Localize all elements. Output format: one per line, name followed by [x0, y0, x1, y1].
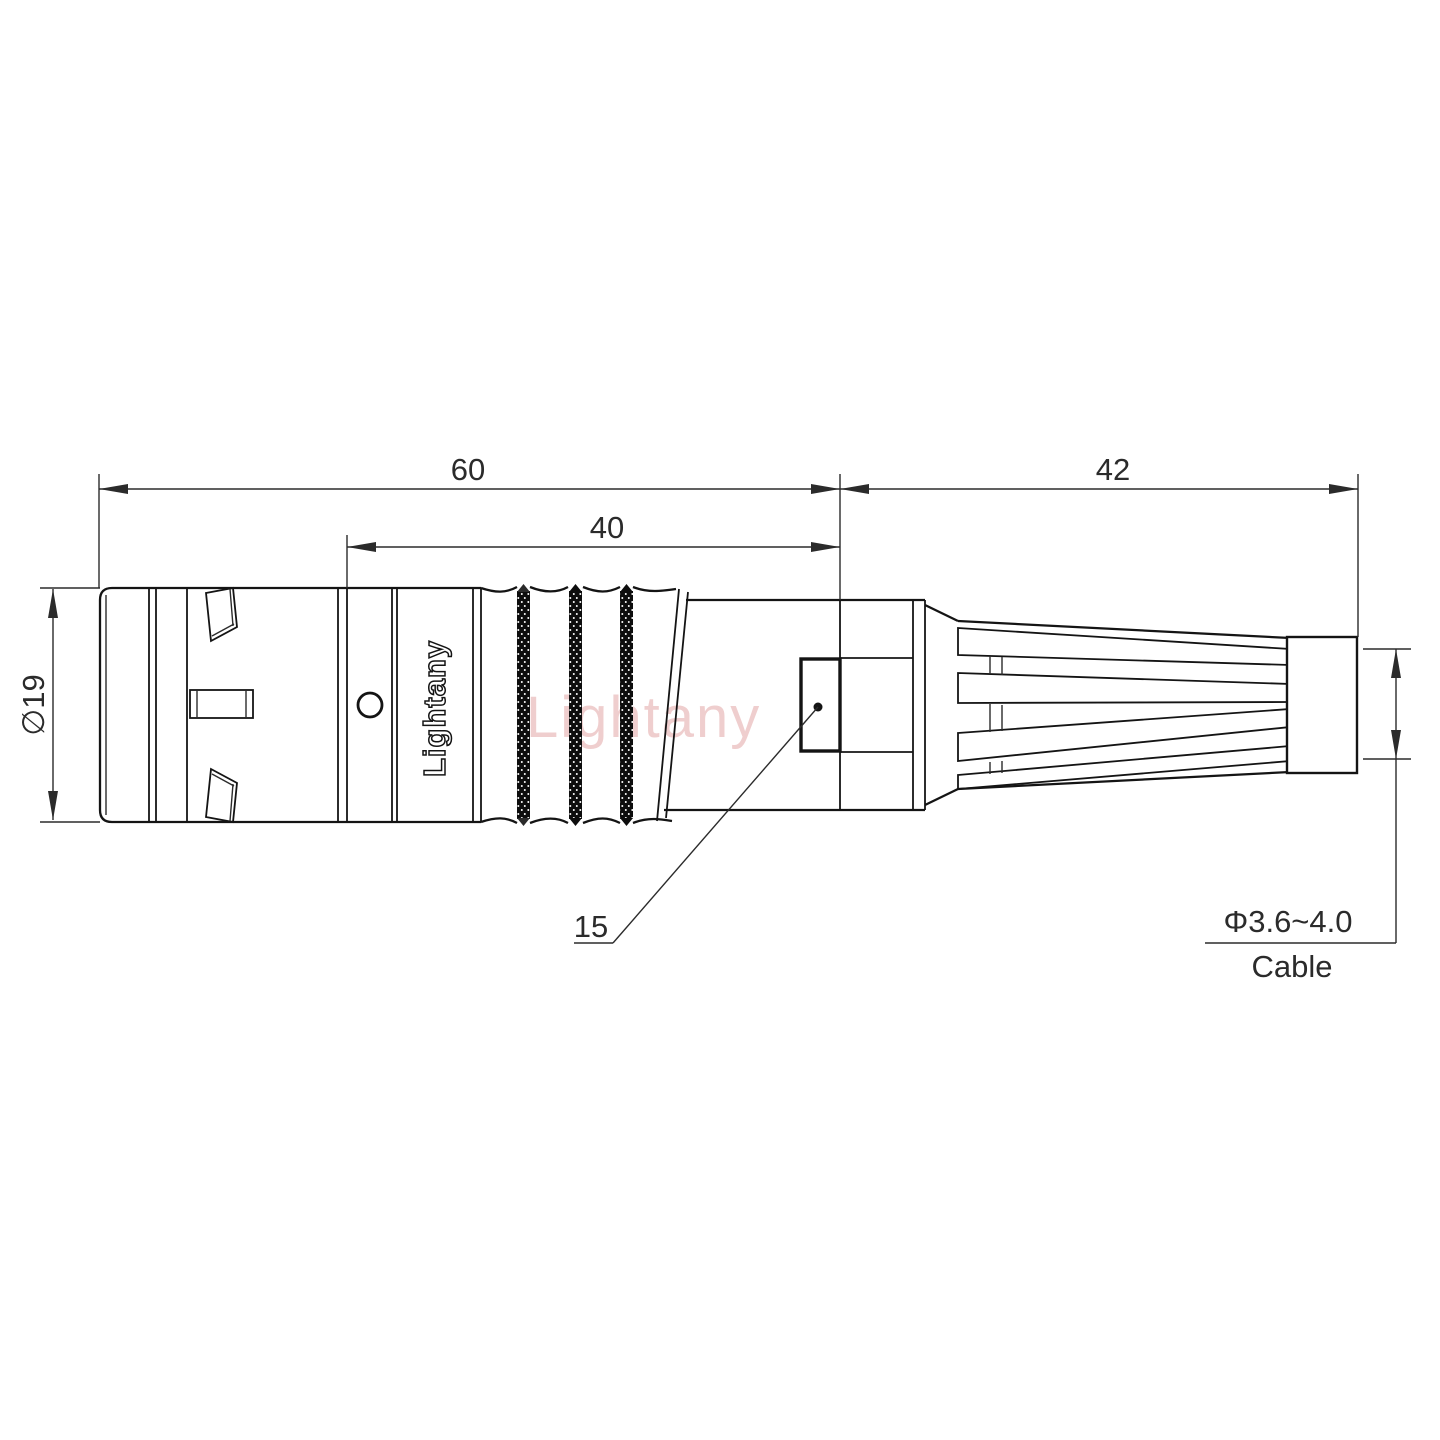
dim-overall-length: 60	[99, 452, 840, 494]
boot-rib	[958, 709, 1290, 761]
watermark-text: Lightany	[526, 685, 761, 750]
dim-boot-length: 42	[840, 452, 1358, 494]
dim-body-diameter: ∅19	[16, 589, 58, 820]
dim-rear-length-label: 40	[590, 510, 624, 545]
dim-overall-length-label: 60	[451, 452, 485, 487]
bayonet-slot	[190, 690, 253, 718]
cable-end-sleeve	[1287, 637, 1357, 773]
boot-rib	[958, 673, 1290, 703]
knurl-band	[517, 584, 530, 826]
dim-rear-length: 40	[347, 510, 840, 552]
cable-label: Cable	[1252, 949, 1333, 984]
bayonet-lug-top	[206, 588, 237, 641]
boot-rib	[958, 746, 1290, 789]
knurl-band	[569, 584, 582, 826]
connector-technical-drawing: Lightany	[0, 0, 1440, 1440]
vent-hole	[358, 693, 382, 717]
dim-body-diameter-label: ∅19	[16, 674, 51, 736]
dim-boot-length-label: 42	[1096, 452, 1130, 487]
drawing-page: Lightany	[0, 0, 1440, 1440]
leader-item-15-label: 15	[574, 909, 608, 944]
brand-text-vertical: Lightany	[417, 640, 452, 777]
dim-cable-diameter-label: Φ3.6~4.0	[1223, 904, 1352, 939]
knurl-band	[620, 584, 633, 826]
front-shell	[100, 588, 347, 822]
mid-barrel: Lightany	[347, 588, 481, 822]
strain-relief-boot	[925, 605, 1290, 805]
boot-rib	[958, 628, 1290, 665]
bayonet-lug-bottom	[206, 769, 237, 822]
